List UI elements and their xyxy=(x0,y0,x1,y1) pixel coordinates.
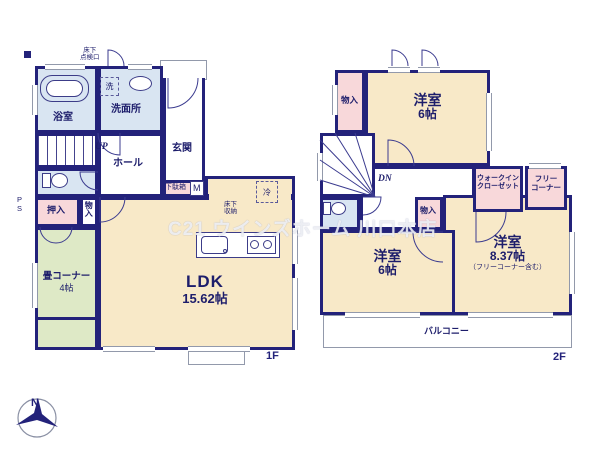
window-bath-top xyxy=(45,64,85,70)
compass-north-letter: N xyxy=(31,397,39,409)
label-storage-1f: 物入 xyxy=(84,201,93,217)
label-underfloor-hatch: 床下 点検口 xyxy=(80,47,100,62)
label-shoe-cabinet: 下駄箱 xyxy=(165,184,186,192)
stairs-1f xyxy=(35,133,98,168)
washbasin-icon xyxy=(129,76,152,91)
label-floor-2f: 2F xyxy=(553,351,566,363)
compass-icon: N xyxy=(16,397,58,437)
label-balcony: バルコニー xyxy=(424,326,469,336)
label-wic: ウォークイン クローゼット xyxy=(477,175,519,191)
ldk-wall-merge-patch xyxy=(209,192,291,201)
label-washroom: 洗面所 xyxy=(111,104,141,116)
label-bedroom-north-group: 洋室 6帖 xyxy=(365,92,490,122)
label-bedroom-se-group: 洋室 8.37帖 （フリーコーナー含む） xyxy=(443,234,572,272)
label-pipe-space: P S xyxy=(17,196,22,213)
window-bedroom-sw-balcony xyxy=(345,312,420,318)
window-tatami-bottom xyxy=(103,346,155,352)
window-ldk-bottom xyxy=(188,346,250,352)
label-bedroom-north-size: 6帖 xyxy=(418,108,437,122)
kitchen-faucet-icon xyxy=(223,249,227,253)
label-bedroom-sw: 洋室 xyxy=(374,248,402,264)
label-tatami-size: 4帖 xyxy=(59,283,73,293)
label-bedroom-sw-group: 洋室 6帖 xyxy=(320,248,455,278)
entrance-porch xyxy=(160,60,207,80)
stairs-2f xyxy=(320,133,375,197)
label-bathroom: 浴室 xyxy=(53,112,73,124)
label-floor-1f: 1F xyxy=(266,350,279,362)
stove-burner-left-icon xyxy=(250,240,259,249)
window-bedroom-se-balcony xyxy=(468,312,553,318)
label-ldk-group: LDK 15.62帖 xyxy=(150,272,260,306)
fridge-icon: 冷 xyxy=(256,181,278,203)
window-stairs-left xyxy=(317,153,323,181)
window-ldk-right-lower xyxy=(292,278,298,330)
label-hall: ホール xyxy=(113,158,143,170)
watermark-text: C21 ウインズホーム 川口本店 xyxy=(168,214,437,241)
window-bedroom-north-top-right xyxy=(418,67,440,73)
compass-needle xyxy=(16,398,58,427)
casement-window-left-arc xyxy=(392,50,408,66)
label-ldk-size: 15.62帖 xyxy=(182,292,228,307)
label-bedroom-sw-size: 6帖 xyxy=(378,264,397,278)
back-door-arc xyxy=(108,50,124,66)
label-ldk: LDK xyxy=(186,272,224,292)
window-bath-left xyxy=(32,85,38,115)
label-stairs-down: DN xyxy=(378,174,392,185)
label-bedroom-north: 洋室 xyxy=(414,92,442,108)
corner-pillar xyxy=(24,51,31,58)
label-storage-2f-north: 物入 xyxy=(341,96,358,106)
window-bedroom-north-top-left xyxy=(388,67,410,73)
label-entrance: 玄関 xyxy=(172,143,192,155)
toilet-bowl-1f-icon xyxy=(51,173,68,188)
south-porch-step xyxy=(188,351,245,365)
label-stairs-up: UP xyxy=(95,142,108,153)
label-tatami-group: 畳コーナー 4帖 xyxy=(35,272,98,293)
label-bedroom-se-note: （フリーコーナー含む） xyxy=(469,264,546,272)
label-shoe-cabinet-m: M xyxy=(193,183,201,193)
stove-burner-right-icon xyxy=(263,240,272,249)
window-storage-north-left xyxy=(332,85,338,115)
label-tatami: 畳コーナー xyxy=(43,272,91,283)
window-washroom-top xyxy=(128,64,152,70)
floorplan-canvas: 洗 冷 床下 点検口 浴室 洗面所 玄関 下駄箱 M UP ホール P S 押入… xyxy=(0,0,600,450)
window-free-corner-top xyxy=(529,163,561,169)
label-free-corner: フリー コーナー xyxy=(531,175,561,192)
label-bedroom-se: 洋室 xyxy=(494,234,522,250)
tatami-divider-wall xyxy=(35,317,98,320)
label-bedroom-se-size: 8.37帖 xyxy=(490,250,525,264)
washing-machine-icon: 洗 xyxy=(100,77,119,96)
toilet-tank-1f-icon xyxy=(42,173,51,188)
bathtub-inner-icon xyxy=(46,80,83,97)
label-oshiire: 押入 xyxy=(47,205,65,215)
casement-window-right-arc xyxy=(422,50,438,66)
